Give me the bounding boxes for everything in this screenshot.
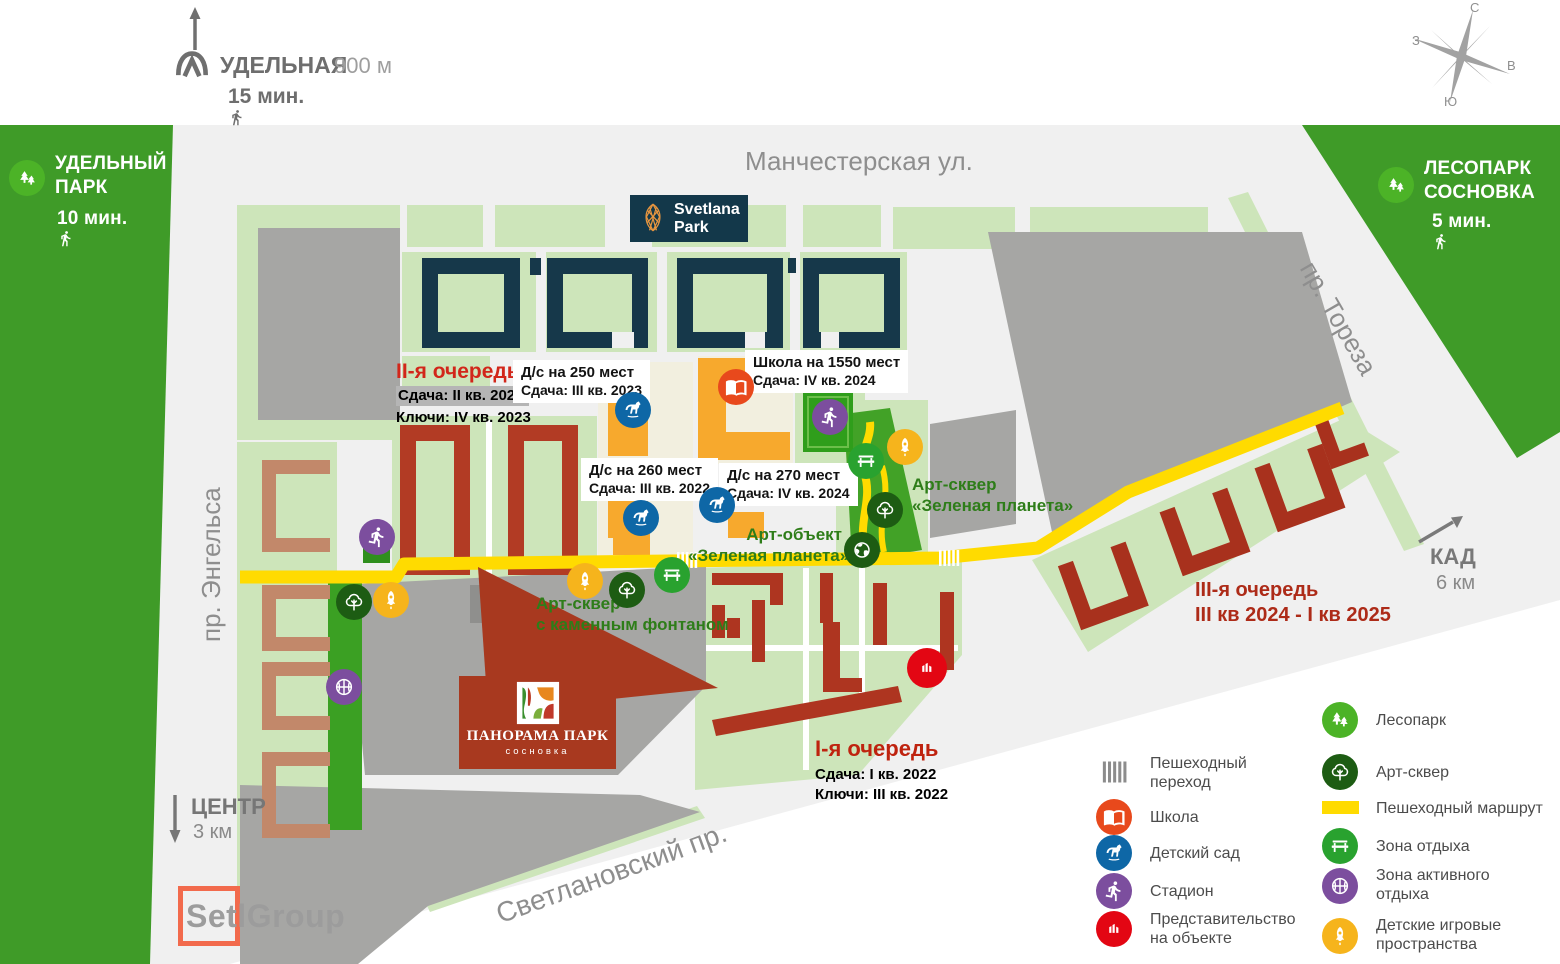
school-marker bbox=[718, 369, 754, 405]
sosnovka-name-line1: ЛЕСОПАРК bbox=[1424, 158, 1531, 180]
kids-play-icon bbox=[894, 436, 916, 458]
phase-1-title: I-я очередь bbox=[815, 736, 948, 762]
kindergarten-marker bbox=[699, 487, 735, 523]
stadium-marker bbox=[359, 519, 395, 555]
kad-distance: 6 км bbox=[1436, 572, 1475, 595]
project-name: ПАНОРАМА ПАРК bbox=[459, 728, 616, 745]
art-square-icon bbox=[616, 579, 638, 601]
art-square-icon bbox=[874, 499, 896, 521]
earth-icon bbox=[851, 539, 873, 561]
legend-rest-zone-label: Зона отдыха bbox=[1376, 837, 1516, 856]
compass-west-label: З bbox=[1412, 33, 1420, 48]
school-1550-box: Школа на 1550 мест Сдача: IV кв. 2024 bbox=[745, 350, 908, 393]
sosnovka-walk-time: 5 мин. bbox=[1432, 211, 1492, 250]
pinecone-icon bbox=[640, 201, 666, 237]
art-object-planet-line1: Арт-объект bbox=[688, 524, 842, 545]
street-north-label: Манчестерская ул. bbox=[745, 146, 973, 177]
compass-east-label: В bbox=[1507, 58, 1516, 73]
svetlana-park-badge: Svetlana Park bbox=[630, 195, 748, 242]
metro-walk-time-label: 15 мин. bbox=[228, 85, 304, 108]
art-square-icon bbox=[1322, 754, 1358, 790]
basketball-icon bbox=[333, 676, 355, 698]
kad-arrow-icon bbox=[1415, 512, 1467, 546]
kindergarten-icon bbox=[630, 507, 652, 529]
svetlana-park-line1: Svetlana bbox=[674, 201, 740, 219]
project-logo-callout: ПАНОРАМА ПАРК сосновка bbox=[459, 676, 616, 769]
kindergarten-260-name: Д/с на 260 мест bbox=[589, 462, 710, 479]
kindergarten-260-delivery: Сдача: III кв. 2022 bbox=[589, 480, 710, 496]
rest-zone-marker bbox=[654, 557, 690, 593]
kindergarten-icon bbox=[706, 494, 728, 516]
art-object-planet-label: Арт-объект «Зеленая планета» bbox=[688, 524, 842, 566]
legend-kindergarten-label: Детский сад bbox=[1150, 844, 1280, 863]
active-rest-icon bbox=[1322, 868, 1358, 904]
rest-zone-icon bbox=[855, 450, 877, 472]
representative-icon bbox=[1096, 911, 1132, 947]
school-icon bbox=[725, 376, 747, 398]
art-square-icon bbox=[343, 591, 365, 613]
compass-rose-icon bbox=[1398, 2, 1526, 112]
panorama-park-logo-icon bbox=[516, 681, 560, 725]
kindergarten-icon bbox=[1096, 835, 1132, 871]
representative-marker bbox=[907, 648, 947, 688]
stadium-icon bbox=[1096, 873, 1132, 909]
kindergarten-270-delivery: Сдача: IV кв. 2024 bbox=[727, 485, 850, 501]
art-square-planet-line2: «Зеленая планета» bbox=[912, 495, 1073, 516]
kids-play-icon bbox=[380, 589, 402, 611]
north-arrow-icon bbox=[186, 6, 204, 52]
legend-walking-route-label: Пешеходный маршрут bbox=[1376, 799, 1560, 818]
art-square-marker bbox=[867, 492, 903, 528]
legend-stadium-label: Стадион bbox=[1150, 882, 1270, 901]
art-square-marker bbox=[336, 584, 372, 620]
udelny-park-band bbox=[0, 125, 173, 964]
kindergarten-270-name: Д/с на 270 мест bbox=[727, 467, 850, 484]
active-rest-marker bbox=[326, 669, 362, 705]
legend-forest-park-label: Лесопарк bbox=[1376, 711, 1516, 730]
art-square-planet-line1: Арт-сквер bbox=[912, 474, 1073, 495]
udelny-walk-label: 10 мин. bbox=[57, 208, 127, 229]
sosnovka-walk-label: 5 мин. bbox=[1432, 211, 1492, 232]
forest-park-icon bbox=[1322, 702, 1358, 738]
compass-south-label: Ю bbox=[1444, 94, 1457, 109]
kindergarten-marker bbox=[623, 500, 659, 536]
stadium-icon bbox=[819, 406, 841, 428]
art-square-planet-label: Арт-сквер «Зеленая планета» bbox=[912, 474, 1073, 516]
school-1550-name: Школа на 1550 мест bbox=[753, 354, 900, 371]
school-1550-delivery: Сдача: IV кв. 2024 bbox=[753, 372, 900, 388]
art-object-planet-line2: «Зеленая планета» bbox=[688, 545, 842, 566]
kids-play-icon bbox=[574, 570, 596, 592]
phase-2-label: II-я очередь Сдача: II кв. 2023 Ключи: I… bbox=[396, 360, 531, 426]
legend-kids-play-label: Детские игровые пространства bbox=[1376, 916, 1516, 954]
school-icon bbox=[1096, 799, 1132, 835]
udelny-park-name-line1: УДЕЛЬНЫЙ bbox=[55, 153, 167, 175]
udelny-park-name-line2: ПАРК bbox=[55, 177, 107, 199]
art-square-marker bbox=[609, 572, 645, 608]
representative-icon bbox=[916, 657, 938, 679]
kids-play-icon bbox=[1322, 918, 1358, 954]
phase-2-title: II-я очередь bbox=[396, 360, 531, 384]
metro-station-name: УДЕЛЬНАЯ bbox=[220, 52, 347, 79]
sosnovka-name-line2: СОСНОВКА bbox=[1424, 182, 1535, 204]
rest-zone-icon bbox=[1322, 828, 1358, 864]
legend-representative-label: Представительство на объекте bbox=[1150, 910, 1295, 948]
kindergarten-260-box: Д/с на 260 мест Сдача: III кв. 2022 bbox=[581, 458, 718, 501]
svetlana-park-line2: Park bbox=[674, 219, 740, 237]
center-distance: 3 км bbox=[193, 821, 232, 844]
metro-icon bbox=[172, 48, 212, 78]
phase-3-title: III-я очередь bbox=[1195, 578, 1391, 603]
phase-2-keys: Ключи: IV кв. 2023 bbox=[396, 409, 531, 426]
compass-north-label: С bbox=[1470, 0, 1479, 15]
kad-label: КАД bbox=[1430, 544, 1476, 570]
street-west-label: пр. Энгельса bbox=[196, 487, 227, 642]
kids-play-marker bbox=[887, 429, 923, 465]
art-object-earth-marker bbox=[844, 532, 880, 568]
stadium-marker bbox=[812, 399, 848, 435]
rest-zone-marker bbox=[848, 443, 884, 479]
kids-play-marker bbox=[567, 563, 603, 599]
phase-3-label: III-я очередь III кв 2024 - I кв 2025 bbox=[1195, 578, 1391, 628]
kindergarten-250-name: Д/с на 250 мест bbox=[521, 364, 642, 381]
udelny-park-walk-time: 10 мин. bbox=[57, 208, 127, 247]
legend-art-square-label: Арт-сквер bbox=[1376, 763, 1516, 782]
project-subname: сосновка bbox=[459, 746, 616, 757]
phase-2-delivery: Сдача: II кв. 2023 bbox=[396, 386, 529, 406]
walking-route-icon bbox=[1322, 801, 1359, 814]
kindergarten-270-box: Д/с на 270 мест Сдача: IV кв. 2024 bbox=[719, 463, 858, 506]
center-label: ЦЕНТР bbox=[191, 794, 266, 820]
kindergarten-marker bbox=[615, 392, 651, 428]
legend-active-rest-label: Зона активного отдыха bbox=[1376, 866, 1516, 904]
kids-play-marker bbox=[373, 582, 409, 618]
forest-park-icon bbox=[9, 160, 45, 196]
phase-1-keys: Ключи: III кв. 2022 bbox=[815, 786, 948, 803]
phase-1-label: I-я очередь Сдача: I кв. 2022 Ключи: III… bbox=[815, 736, 948, 803]
kindergarten-icon bbox=[622, 399, 644, 421]
phase-1-delivery: Сдача: I кв. 2022 bbox=[815, 766, 948, 783]
rest-zone-icon bbox=[661, 564, 683, 586]
stadium-icon bbox=[366, 526, 388, 548]
legend-school-label: Школа bbox=[1150, 808, 1270, 827]
site-location-map: УДЕЛЬНАЯ 900 м 15 мин. УДЕЛЬНЫЙ ПАРК 10 … bbox=[0, 0, 1560, 964]
art-square-fountain-line2: с каменным фонтаном bbox=[536, 614, 729, 635]
phase-3-dates: III кв 2024 - I кв 2025 bbox=[1195, 603, 1391, 628]
legend-crossing-label: Пешеходный переход bbox=[1150, 754, 1270, 792]
metro-distance: 900 м bbox=[334, 53, 392, 79]
developer-logo: SetlGroup bbox=[186, 898, 345, 935]
crossing-icon bbox=[1098, 758, 1132, 786]
center-arrow-icon bbox=[166, 793, 184, 845]
forest-park-icon bbox=[1378, 167, 1414, 203]
metro-walk-time: 15 мин. bbox=[228, 85, 304, 126]
